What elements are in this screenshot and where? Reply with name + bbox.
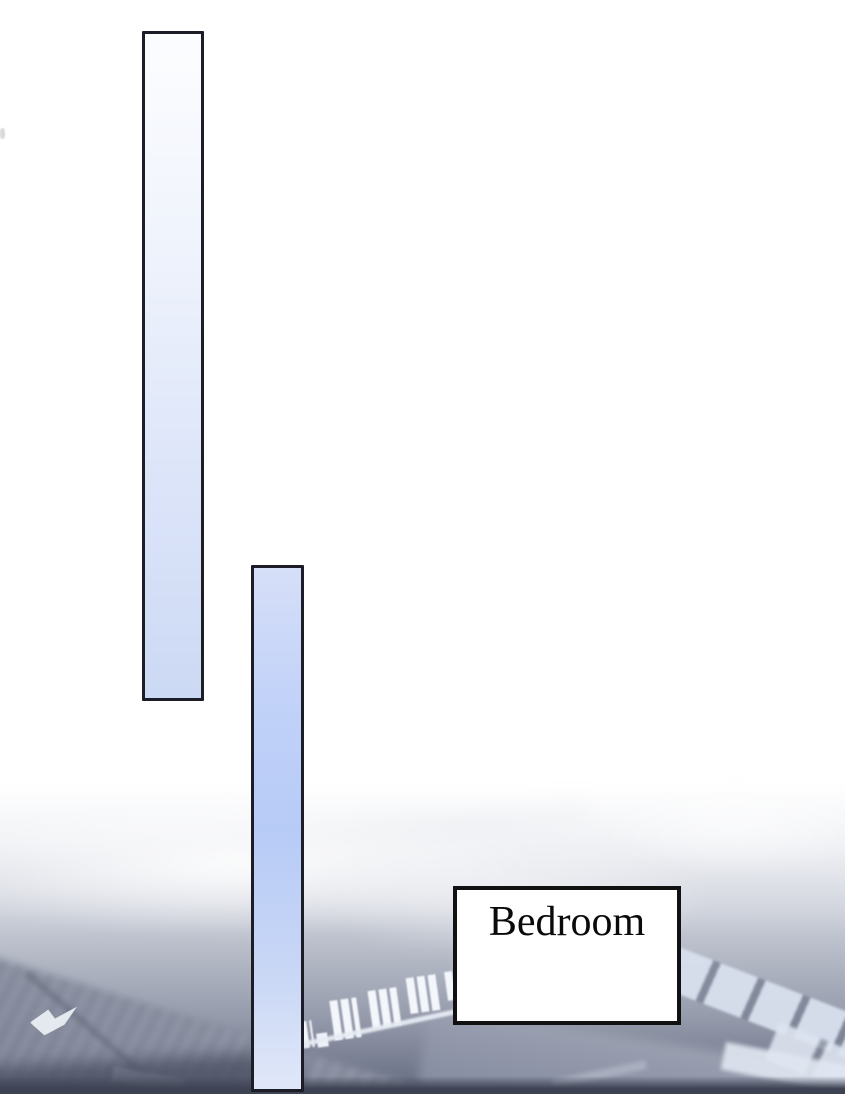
- fog-patch-right: [585, 780, 845, 875]
- comic-page: Bedroom: [0, 0, 845, 1094]
- bedroom-label: Bedroom: [489, 898, 645, 946]
- background-photo: [0, 770, 845, 1094]
- vertical-panel-right: [251, 565, 304, 1092]
- stray-mark: [0, 128, 5, 139]
- bedroom-label-box: Bedroom: [453, 886, 681, 1025]
- vertical-panel-left: [142, 31, 204, 701]
